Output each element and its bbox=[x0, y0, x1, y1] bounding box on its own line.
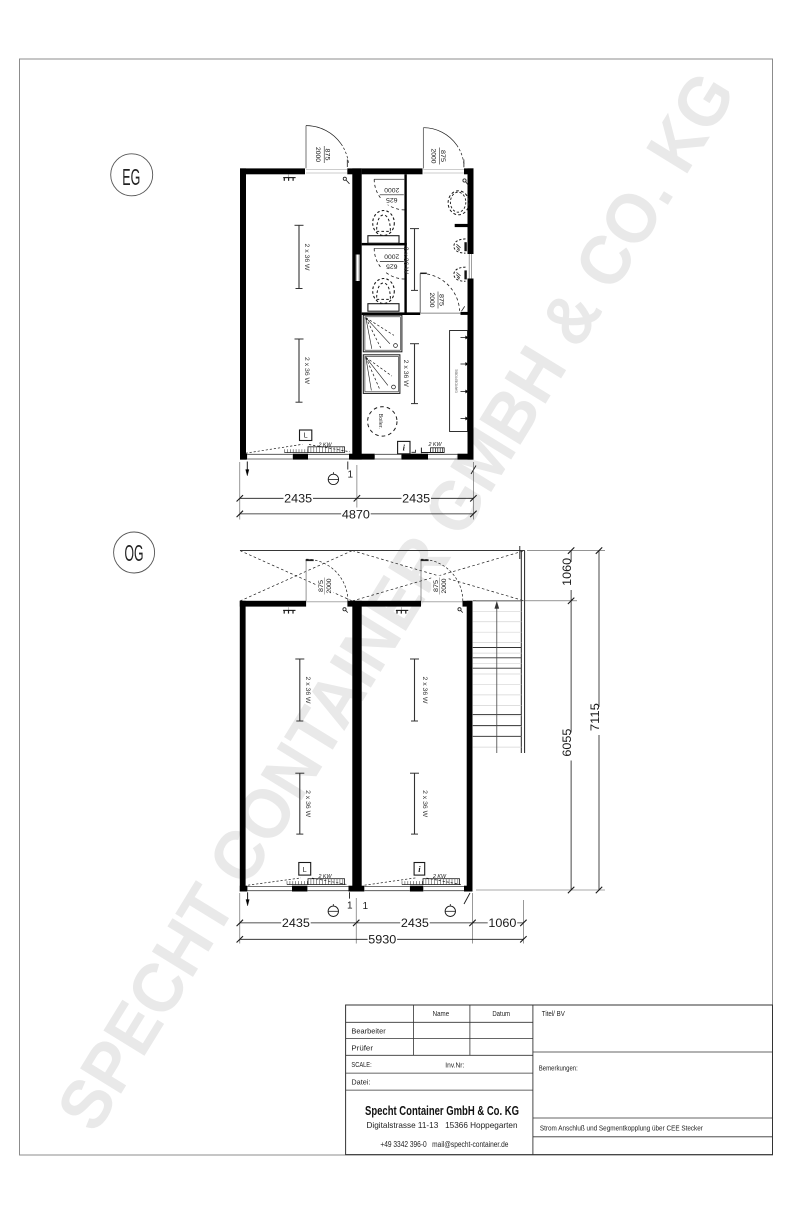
svg-text:875: 875 bbox=[433, 579, 440, 592]
svg-text:GARDEROBE: GARDEROBE bbox=[455, 369, 459, 393]
svg-text:1060: 1060 bbox=[560, 558, 574, 586]
svg-text:2 x 36 W: 2 x 36 W bbox=[402, 247, 409, 274]
svg-text:2 x 36 W: 2 x 36 W bbox=[303, 244, 310, 271]
svg-text:1: 1 bbox=[348, 469, 354, 480]
svg-text:4870: 4870 bbox=[342, 507, 370, 521]
svg-text:2 x 36 W: 2 x 36 W bbox=[303, 357, 310, 384]
svg-text:2 KW: 2 KW bbox=[318, 442, 333, 448]
svg-text:L: L bbox=[303, 867, 307, 874]
svg-text:SCALE:: SCALE: bbox=[351, 1060, 371, 1069]
svg-text:Specht Container GmbH & Co. KG: Specht Container GmbH & Co. KG bbox=[365, 1104, 519, 1118]
svg-text:2 x 36 W: 2 x 36 W bbox=[421, 790, 428, 817]
svg-text:2 KW: 2 KW bbox=[428, 442, 443, 448]
svg-text:6055: 6055 bbox=[560, 728, 574, 756]
svg-text:Boiler.: Boiler. bbox=[377, 413, 383, 429]
svg-text:875: 875 bbox=[318, 579, 325, 592]
svg-text:2000: 2000 bbox=[384, 186, 399, 193]
svg-text:5930: 5930 bbox=[368, 933, 396, 947]
svg-text:2 KW: 2 KW bbox=[432, 874, 447, 880]
svg-text:Datum: Datum bbox=[492, 1009, 510, 1018]
svg-text:1: 1 bbox=[347, 901, 353, 912]
svg-text:7115: 7115 bbox=[588, 703, 602, 731]
svg-text:Bemerkungen:: Bemerkungen: bbox=[539, 1064, 578, 1073]
svg-text:1060: 1060 bbox=[488, 916, 516, 930]
svg-text:2 x 36 W: 2 x 36 W bbox=[421, 677, 428, 704]
svg-text:OG: OG bbox=[125, 540, 144, 566]
svg-text:2000: 2000 bbox=[314, 147, 321, 163]
svg-text:Datei:: Datei: bbox=[351, 1078, 370, 1087]
svg-text:2000: 2000 bbox=[441, 578, 448, 594]
svg-text:875: 875 bbox=[324, 149, 331, 162]
svg-text:L: L bbox=[304, 433, 308, 440]
svg-text:2435: 2435 bbox=[284, 492, 312, 506]
svg-text:2000: 2000 bbox=[429, 149, 436, 165]
svg-text:2000: 2000 bbox=[384, 253, 399, 260]
svg-text:Titel/ BV: Titel/ BV bbox=[542, 1009, 566, 1018]
svg-text:Name: Name bbox=[433, 1009, 450, 1018]
svg-text:2 x 36 W: 2 x 36 W bbox=[402, 360, 409, 387]
svg-text:2435: 2435 bbox=[282, 916, 310, 930]
svg-text:Digitalstrasse 11-13 15366 H: Digitalstrasse 11-13 15366 Hoppegarten bbox=[367, 1120, 518, 1130]
svg-text:2 KW: 2 KW bbox=[318, 874, 333, 880]
svg-text:Strom Anschluß und Segmentkopp: Strom Anschluß und Segmentkopplung über … bbox=[540, 1126, 704, 1133]
svg-text:Prüfer: Prüfer bbox=[351, 1043, 373, 1052]
svg-text:+49 3342 396-0 mail@specht-c: +49 3342 396-0 mail@specht-container.de bbox=[380, 1140, 508, 1149]
svg-text:Bearbeiter: Bearbeiter bbox=[351, 1027, 386, 1036]
svg-text:2000: 2000 bbox=[428, 293, 435, 309]
svg-text:2000: 2000 bbox=[326, 578, 333, 594]
svg-text:2 x 36 W: 2 x 36 W bbox=[304, 790, 311, 817]
svg-text:1: 1 bbox=[363, 901, 369, 912]
svg-text:EG: EG bbox=[122, 164, 140, 190]
svg-text:Inv.Nr:: Inv.Nr: bbox=[445, 1060, 464, 1069]
svg-text:2435: 2435 bbox=[402, 492, 430, 506]
svg-text:875: 875 bbox=[438, 294, 445, 307]
svg-text:625: 625 bbox=[386, 263, 398, 270]
svg-text:2435: 2435 bbox=[401, 916, 429, 930]
svg-text:625: 625 bbox=[386, 196, 398, 203]
svg-text:2 x 36 W: 2 x 36 W bbox=[304, 677, 311, 704]
svg-text:875: 875 bbox=[439, 150, 446, 163]
